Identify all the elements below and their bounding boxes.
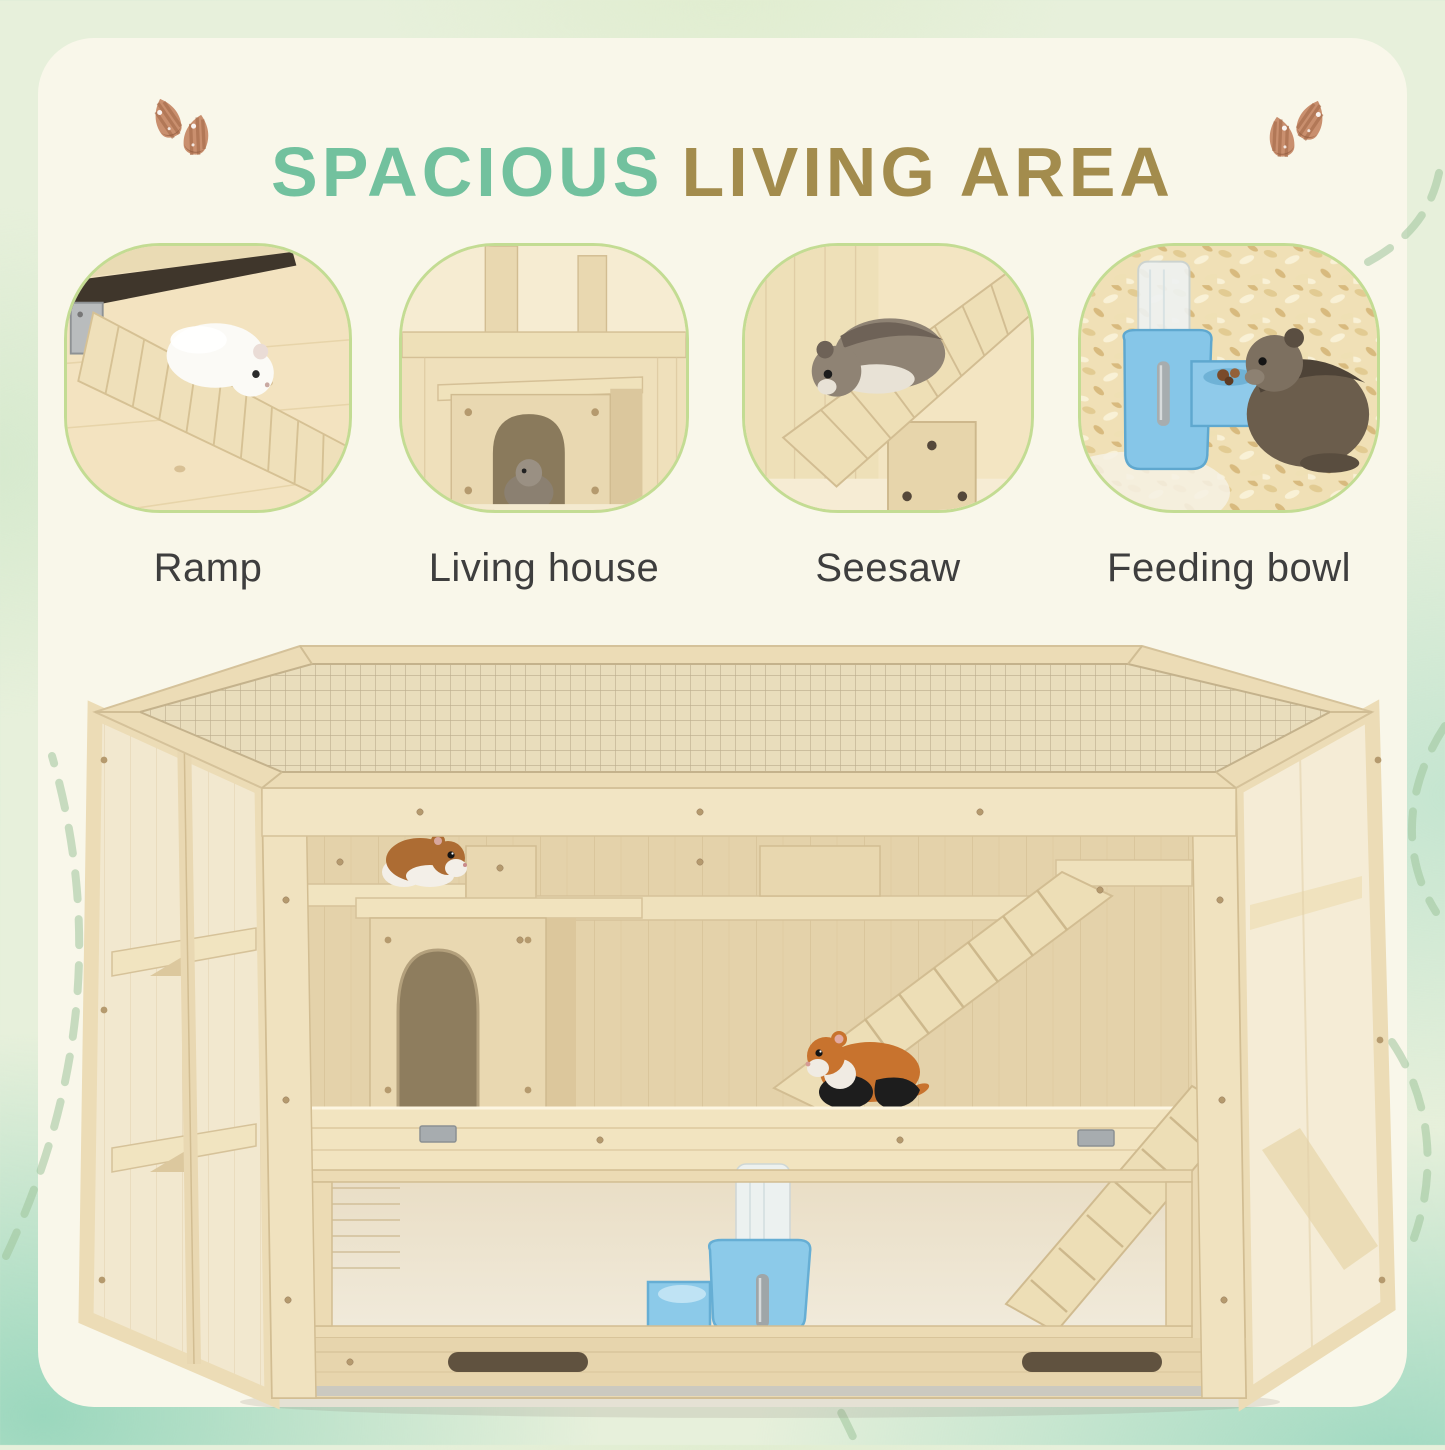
hinge: [420, 1126, 456, 1142]
cage-left-panel: [86, 712, 272, 1398]
cage-front-face: [262, 788, 1246, 1398]
cage-bottom-band: [272, 1338, 1246, 1396]
product-image-hamster-cage: [0, 0, 1445, 1445]
cage-right-panel: [1236, 712, 1388, 1398]
hinge: [1078, 1130, 1114, 1146]
handle-slot: [1022, 1352, 1162, 1372]
cage-mesh-top: [95, 646, 1372, 788]
handle-slot: [448, 1352, 588, 1372]
